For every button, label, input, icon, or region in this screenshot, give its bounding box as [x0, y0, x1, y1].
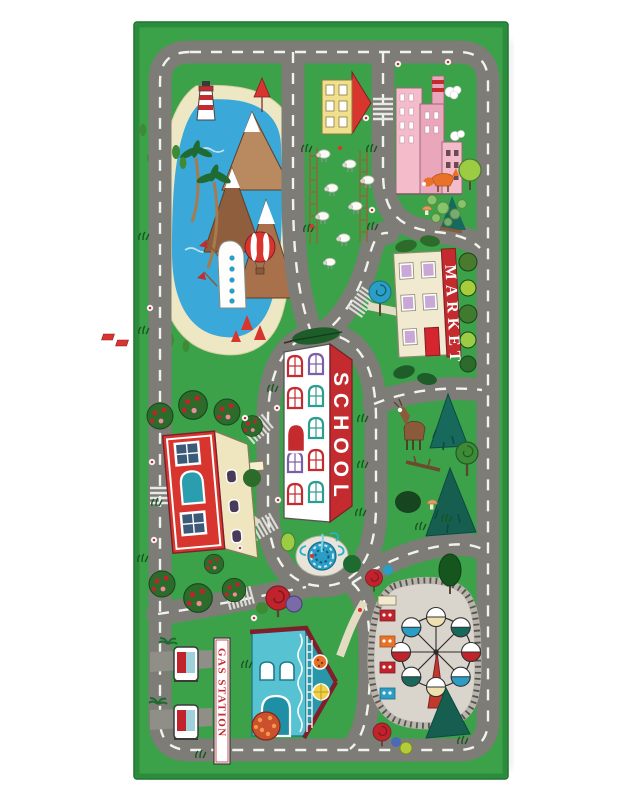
small-tree: [243, 469, 261, 487]
market-building: MARKET: [393, 248, 463, 369]
window: [280, 662, 294, 680]
market-door: [424, 327, 439, 356]
orange-dot-bush: [252, 712, 280, 740]
gas-sign-text: GAS STATION: [216, 648, 228, 738]
window: [260, 662, 274, 680]
play-rug-scene: MARKET: [0, 0, 640, 800]
fuel-pump: [174, 647, 198, 681]
farmhouse-window: [173, 441, 201, 467]
school-sign-text: SCHOOL: [329, 372, 352, 504]
farmhouse-window: [179, 510, 207, 536]
fuel-pump: [174, 705, 198, 739]
lighthouse-icon: [197, 81, 215, 120]
ticket-booth: [378, 596, 396, 605]
product-photo: MARKET: [0, 0, 640, 800]
school-building: SCHOOL: [284, 344, 352, 522]
school-door: [287, 424, 305, 452]
dark-tree: [395, 491, 421, 513]
small-tree: [281, 533, 295, 551]
farmhouse-door: [180, 470, 205, 504]
gas-sign: GAS STATION: [214, 638, 230, 764]
round-window: [313, 655, 327, 669]
lake-area: [102, 78, 297, 355]
small-tree: [343, 555, 361, 573]
